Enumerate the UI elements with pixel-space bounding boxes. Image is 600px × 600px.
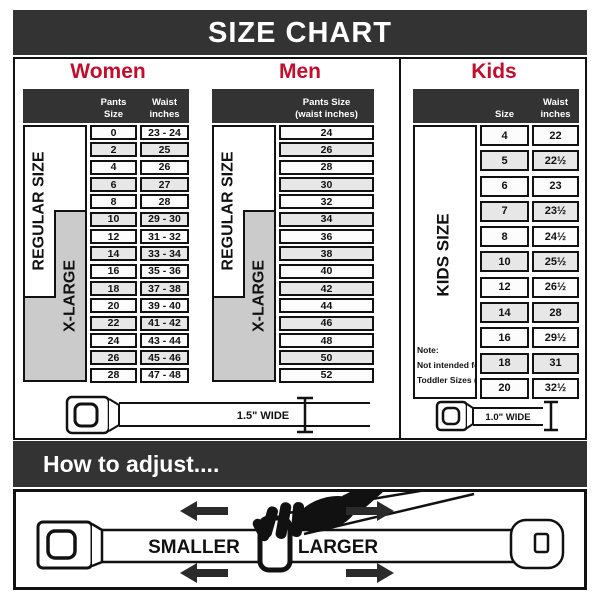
waist-cell: 26½ xyxy=(532,277,579,298)
table-row: 627 xyxy=(90,177,189,192)
waist-column-header: Waist inches xyxy=(532,97,579,120)
table-row: 1029 - 30 xyxy=(90,212,189,227)
size-cell: 16 xyxy=(480,327,529,348)
waist-cell: 26 xyxy=(140,160,189,175)
waist-cell: 22 xyxy=(532,125,579,146)
table-row: 26 xyxy=(279,142,374,157)
men-section-heading: Men xyxy=(201,60,399,84)
table-row: 24 xyxy=(279,125,374,140)
table-row: 2847 - 48 xyxy=(90,368,189,383)
table-row: 1837 - 38 xyxy=(90,281,189,296)
size-cell: 36 xyxy=(279,229,374,244)
table-row: 1231 - 32 xyxy=(90,229,189,244)
table-row: 48 xyxy=(279,333,374,348)
adult-belt-width-illustration: 1.5" WIDE xyxy=(55,393,373,437)
kids-note-line2: Not intended for xyxy=(417,360,477,370)
arrow-left-icon xyxy=(180,563,228,583)
size-cell: 18 xyxy=(480,353,529,374)
size-cell: 7 xyxy=(480,201,529,222)
size-cell: 24 xyxy=(90,333,137,348)
men-table-header: Pants Size (waist inches) xyxy=(212,89,374,123)
waist-cell: 28 xyxy=(140,194,189,209)
size-cell: 28 xyxy=(279,160,374,175)
waist-cell: 23 - 24 xyxy=(140,125,189,140)
size-cell: 40 xyxy=(279,264,374,279)
xlarge-label: X-LARGE xyxy=(62,260,79,332)
waist-cell: 25½ xyxy=(532,251,579,272)
belt-buckle-icon xyxy=(437,402,473,430)
table-row: 1831 xyxy=(480,353,579,374)
men-size-category-labels: REGULAR SIZE X-LARGE xyxy=(212,125,276,383)
table-row: 2241 - 42 xyxy=(90,316,189,331)
women-section-heading: Women xyxy=(15,60,201,84)
women-table-header: Pants Size Waist inches xyxy=(23,89,189,123)
size-cell: 32 xyxy=(279,194,374,209)
size-cell: 2 xyxy=(90,142,137,157)
waist-cell: 23 xyxy=(532,176,579,197)
women-table-body: REGULAR SIZE X-LARGE 023 - 2422542662782… xyxy=(23,125,189,383)
table-row: 426 xyxy=(90,160,189,175)
size-cell: 34 xyxy=(279,212,374,227)
waist-cell: 25 xyxy=(140,142,189,157)
size-cell: 14 xyxy=(480,302,529,323)
size-cell: 24 xyxy=(279,125,374,140)
table-row: 34 xyxy=(279,212,374,227)
size-tables-panel: Women Men Kids Pants Size Waist inches R… xyxy=(13,57,587,440)
waist-cell: 45 - 46 xyxy=(140,350,189,365)
women-rows: 023 - 242254266278281029 - 301231 - 3214… xyxy=(90,125,189,383)
size-cell: 12 xyxy=(90,229,137,244)
size-cell: 18 xyxy=(90,281,137,296)
size-cell: 52 xyxy=(279,368,374,383)
kids-note-line1: Note: xyxy=(417,345,439,355)
size-cell: 8 xyxy=(480,226,529,247)
table-row: 28 xyxy=(279,160,374,175)
table-row: 38 xyxy=(279,246,374,261)
kids-belt-width-label: 1.0" WIDE xyxy=(485,412,530,423)
size-cell: 12 xyxy=(480,277,529,298)
kids-section-divider xyxy=(399,59,401,438)
xlarge-label: X-LARGE xyxy=(251,260,268,332)
kids-size-label: KIDS SIZE xyxy=(434,213,453,296)
size-cell: 42 xyxy=(279,281,374,296)
women-size-table: Pants Size Waist inches REGULAR SIZE X-L… xyxy=(23,89,189,383)
men-table-body: REGULAR SIZE X-LARGE 2426283032343638404… xyxy=(212,125,374,383)
table-row: 46 xyxy=(279,316,374,331)
size-column-header: Size xyxy=(480,109,529,120)
table-row: 824½ xyxy=(480,226,579,247)
table-row: 42 xyxy=(279,281,374,296)
table-row: 623 xyxy=(480,176,579,197)
table-row: 2443 - 44 xyxy=(90,333,189,348)
women-size-category-labels: REGULAR SIZE X-LARGE xyxy=(23,125,87,383)
table-row: 023 - 24 xyxy=(90,125,189,140)
table-row: 1433 - 34 xyxy=(90,246,189,261)
pants-size-column-header: Pants Size xyxy=(90,97,137,120)
arrow-right-icon xyxy=(346,563,394,583)
regular-size-label: REGULAR SIZE xyxy=(31,151,48,270)
adjustment-illustration-panel: SMALLER LARGER xyxy=(13,489,587,590)
size-cell: 4 xyxy=(480,125,529,146)
size-cell: 50 xyxy=(279,350,374,365)
waist-cell: 31 xyxy=(532,353,579,374)
size-cell: 38 xyxy=(279,246,374,261)
table-row: 50 xyxy=(279,350,374,365)
waist-cell: 23½ xyxy=(532,201,579,222)
waist-cell: 33 - 34 xyxy=(140,246,189,261)
kids-section-heading: Kids xyxy=(403,60,585,84)
size-cell: 16 xyxy=(90,264,137,279)
table-row: 1428 xyxy=(480,302,579,323)
table-row: 1629½ xyxy=(480,327,579,348)
waist-cell: 29½ xyxy=(532,327,579,348)
size-cell: 6 xyxy=(90,177,137,192)
table-row: 2039 - 40 xyxy=(90,298,189,313)
table-row: 2645 - 46 xyxy=(90,350,189,365)
waist-cell: 28 xyxy=(532,302,579,323)
size-cell: 0 xyxy=(90,125,137,140)
width-measure-icon xyxy=(544,402,558,430)
size-cell: 5 xyxy=(480,150,529,171)
waist-cell: 39 - 40 xyxy=(140,298,189,313)
table-row: 1025½ xyxy=(480,251,579,272)
size-cell: 6 xyxy=(480,176,529,197)
waist-cell: 35 - 36 xyxy=(140,264,189,279)
size-cell: 22 xyxy=(90,316,137,331)
belt-buckle-icon xyxy=(67,397,119,433)
waist-cell: 47 - 48 xyxy=(140,368,189,383)
kids-table-body: KIDS SIZE Note: Not intended for Toddler… xyxy=(413,125,579,399)
table-row: 52 xyxy=(279,368,374,383)
table-row: 225 xyxy=(90,142,189,157)
table-row: 828 xyxy=(90,194,189,209)
smaller-label: SMALLER xyxy=(148,537,240,558)
belt-adjustment-illustration: SMALLER LARGER xyxy=(16,492,584,587)
table-row: 40 xyxy=(279,264,374,279)
size-cell: 30 xyxy=(279,177,374,192)
waist-cell: 29 - 30 xyxy=(140,212,189,227)
men-size-table: Pants Size (waist inches) REGULAR SIZE X… xyxy=(212,89,374,383)
waist-cell: 31 - 32 xyxy=(140,229,189,244)
size-cell: 20 xyxy=(90,298,137,313)
size-cell: 10 xyxy=(90,212,137,227)
size-cell: 14 xyxy=(90,246,137,261)
waist-cell: 22½ xyxy=(532,150,579,171)
table-row: 1226½ xyxy=(480,277,579,298)
size-cell: 28 xyxy=(90,368,137,383)
pants-size-column-header: Pants Size (waist inches) xyxy=(279,97,374,120)
how-to-adjust-heading: How to adjust.... xyxy=(13,441,587,487)
table-row: 32 xyxy=(279,194,374,209)
size-cell: 4 xyxy=(90,160,137,175)
belt-buckle-icon xyxy=(38,522,102,568)
kids-note-line3: Toddler Sizes (T) xyxy=(417,375,477,385)
regular-size-label: REGULAR SIZE xyxy=(220,151,237,270)
kids-rows: 422522½623723½824½1025½1226½14281629½183… xyxy=(480,125,579,399)
kids-size-table: Size Waist inches KIDS SIZE Note: Not in… xyxy=(413,89,579,399)
size-cell: 44 xyxy=(279,298,374,313)
table-row: 30 xyxy=(279,177,374,192)
waist-cell: 27 xyxy=(140,177,189,192)
larger-label: LARGER xyxy=(298,537,379,558)
waist-cell: 24½ xyxy=(532,226,579,247)
page-title: SIZE CHART xyxy=(13,10,587,55)
arrow-left-icon xyxy=(180,501,228,521)
adult-belt-width-label: 1.5" WIDE xyxy=(237,410,289,422)
table-row: 723½ xyxy=(480,201,579,222)
kids-belt-width-illustration: 1.0" WIDE xyxy=(431,396,563,436)
table-row: 36 xyxy=(279,229,374,244)
men-rows: 242628303234363840424446485052 xyxy=(279,125,374,383)
table-row: 44 xyxy=(279,298,374,313)
table-row: 1635 - 36 xyxy=(90,264,189,279)
kids-table-header: Size Waist inches xyxy=(413,89,579,123)
size-cell: 48 xyxy=(279,333,374,348)
belt-tip-icon xyxy=(511,520,563,568)
size-cell: 26 xyxy=(90,350,137,365)
size-chart-infographic: SIZE CHART Women Men Kids Pants Size Wai… xyxy=(0,0,600,600)
size-cell: 8 xyxy=(90,194,137,209)
size-cell: 26 xyxy=(279,142,374,157)
waist-cell: 43 - 44 xyxy=(140,333,189,348)
size-cell: 10 xyxy=(480,251,529,272)
kids-size-category-labels: KIDS SIZE Note: Not intended for Toddler… xyxy=(413,125,477,399)
size-cell: 46 xyxy=(279,316,374,331)
table-row: 522½ xyxy=(480,150,579,171)
table-row: 422 xyxy=(480,125,579,146)
waist-column-header: Waist inches xyxy=(140,97,189,120)
waist-cell: 41 - 42 xyxy=(140,316,189,331)
waist-cell: 37 - 38 xyxy=(140,281,189,296)
